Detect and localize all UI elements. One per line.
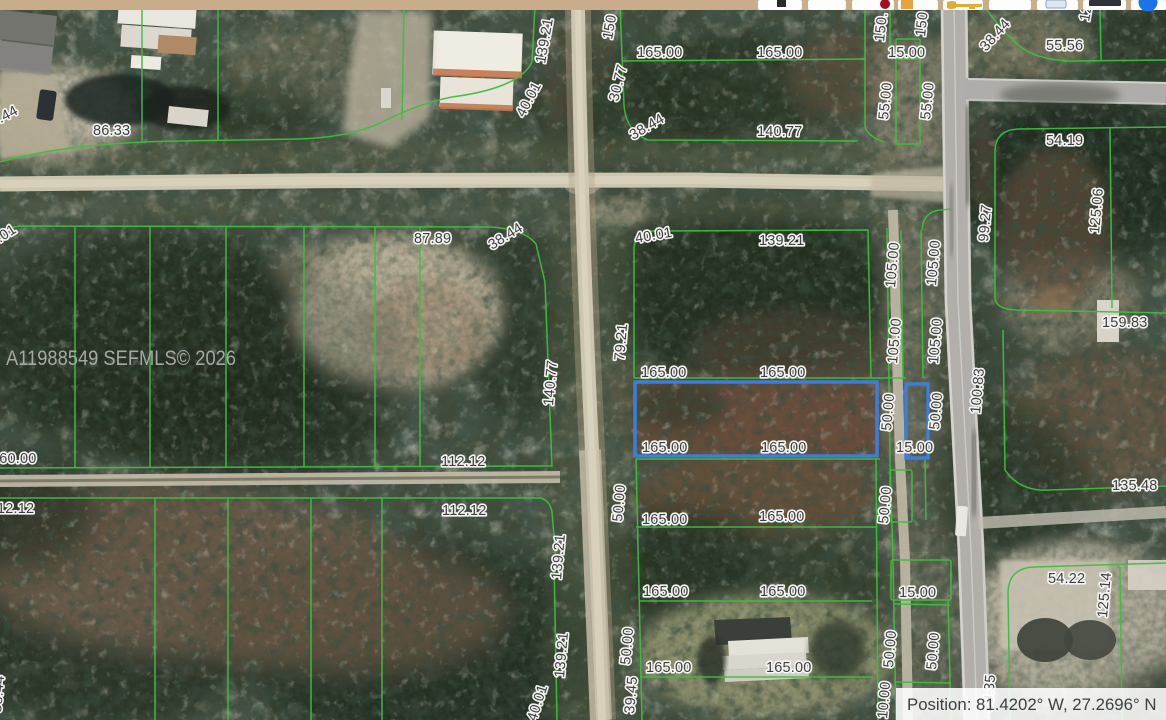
- svg-text:99.27: 99.27: [976, 204, 995, 243]
- svg-text:54.22: 54.22: [1048, 571, 1085, 587]
- svg-text:Position: 81.4202° W, 27.2696°: Position: 81.4202° W, 27.2696° N: [907, 695, 1156, 714]
- svg-text:50.00: 50.00: [881, 630, 900, 669]
- svg-text:165.00: 165.00: [760, 584, 806, 600]
- svg-text:165.00: 165.00: [760, 365, 806, 381]
- svg-text:140.77: 140.77: [757, 124, 803, 140]
- svg-text:79.21: 79.21: [612, 323, 631, 362]
- svg-text:139.21: 139.21: [759, 233, 805, 249]
- svg-text:165.00: 165.00: [761, 440, 807, 456]
- svg-text:A11988549 SEFMLS© 2026: A11988549 SEFMLS© 2026: [6, 346, 236, 370]
- svg-text:50.00: 50.00: [924, 632, 943, 671]
- svg-text:15.00: 15.00: [899, 585, 936, 601]
- svg-text:165.00: 165.00: [637, 45, 683, 61]
- svg-text:112.12: 112.12: [442, 503, 486, 519]
- svg-text:50.00: 50.00: [879, 393, 898, 432]
- svg-text:87.89: 87.89: [414, 231, 451, 247]
- svg-text:165.00: 165.00: [642, 512, 688, 528]
- svg-text:135.48: 135.48: [1112, 478, 1158, 494]
- svg-text:150.: 150.: [872, 12, 891, 43]
- svg-text:50.00: 50.00: [618, 627, 637, 666]
- svg-text:50.00: 50.00: [927, 392, 946, 431]
- svg-text:165.00: 165.00: [643, 584, 689, 600]
- svg-text:159.83: 159.83: [1102, 315, 1148, 331]
- svg-text:165.00: 165.00: [759, 509, 805, 525]
- svg-text:165.00: 165.00: [766, 660, 812, 676]
- svg-text:165.00: 165.00: [757, 45, 803, 61]
- svg-text:165.00: 165.00: [646, 660, 692, 676]
- svg-text:54.19: 54.19: [1046, 133, 1083, 149]
- svg-text:15.00: 15.00: [888, 45, 925, 61]
- svg-text:15.00: 15.00: [896, 440, 933, 456]
- svg-text:12.12: 12.12: [0, 501, 34, 517]
- svg-text:50.00: 50.00: [876, 486, 895, 525]
- svg-text:10.00: 10.00: [875, 681, 894, 720]
- svg-text:50.00: 50.00: [610, 484, 629, 523]
- svg-text:86.33: 86.33: [93, 123, 130, 139]
- svg-text:165.00: 165.00: [641, 365, 687, 381]
- svg-text:55.56: 55.56: [1046, 38, 1083, 54]
- svg-text:160.00: 160.00: [0, 451, 37, 467]
- svg-text:112.12: 112.12: [441, 454, 485, 470]
- svg-text:165.00: 165.00: [642, 440, 688, 456]
- svg-text:39.45: 39.45: [622, 676, 641, 715]
- svg-text:150: 150: [913, 11, 932, 37]
